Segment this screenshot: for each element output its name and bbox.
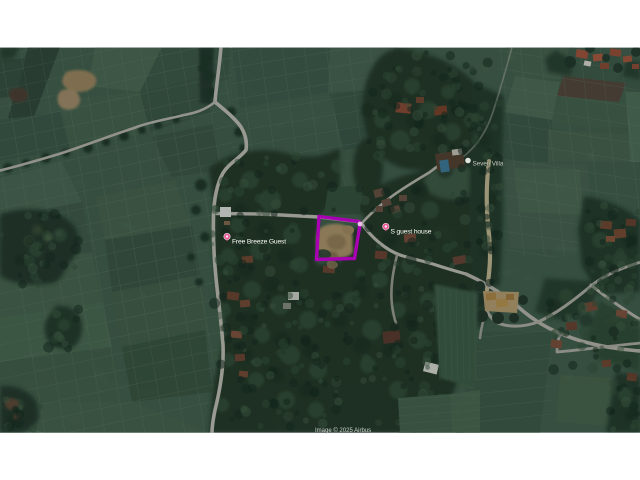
svg-text:Image © 2025 Airbus: Image © 2025 Airbus	[315, 427, 371, 434]
svg-text:Seven Villa: Seven Villa	[473, 161, 504, 168]
svg-text:Free Breeze Guest: Free Breeze Guest	[232, 239, 286, 246]
svg-text:S guest house: S guest house	[391, 229, 432, 236]
